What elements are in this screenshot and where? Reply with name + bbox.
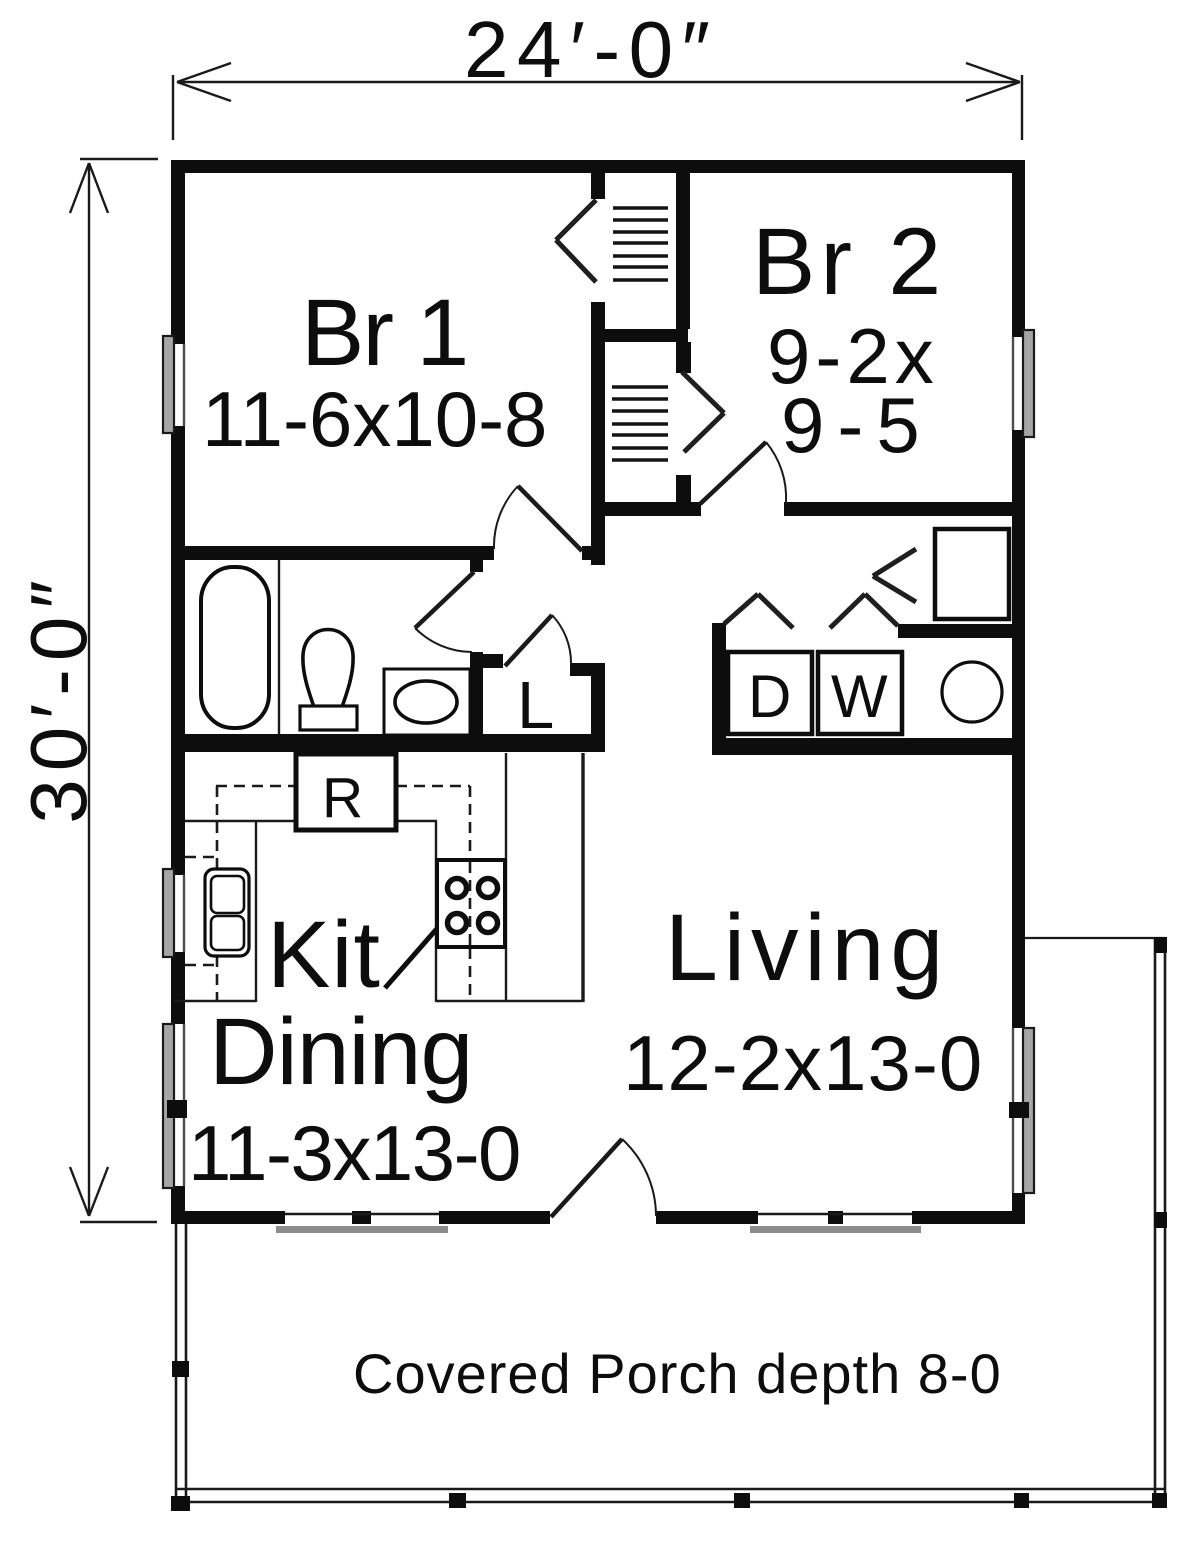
svg-text:Living: Living xyxy=(665,895,949,1001)
svg-text:11-6x10-8: 11-6x10-8 xyxy=(202,375,547,463)
svg-text:12-2x13-0: 12-2x13-0 xyxy=(623,1019,983,1107)
svg-text:Dining: Dining xyxy=(209,999,472,1105)
svg-text:Br 1: Br 1 xyxy=(301,280,467,386)
svg-text:W: W xyxy=(831,663,888,730)
svg-text:11-3x13-0: 11-3x13-0 xyxy=(188,1109,520,1197)
svg-text:R: R xyxy=(322,766,363,830)
svg-text:24′-0″: 24′-0″ xyxy=(464,5,718,94)
svg-text:Kit: Kit xyxy=(267,902,381,1008)
svg-text:30′-0″: 30′-0″ xyxy=(14,572,103,823)
svg-text:9-5: 9-5 xyxy=(781,381,933,469)
svg-text:Covered Porch depth 8-0: Covered Porch depth 8-0 xyxy=(353,1342,1002,1405)
svg-text:D: D xyxy=(748,663,791,730)
svg-text:Br 2: Br 2 xyxy=(752,209,946,315)
svg-text:L: L xyxy=(517,668,554,743)
